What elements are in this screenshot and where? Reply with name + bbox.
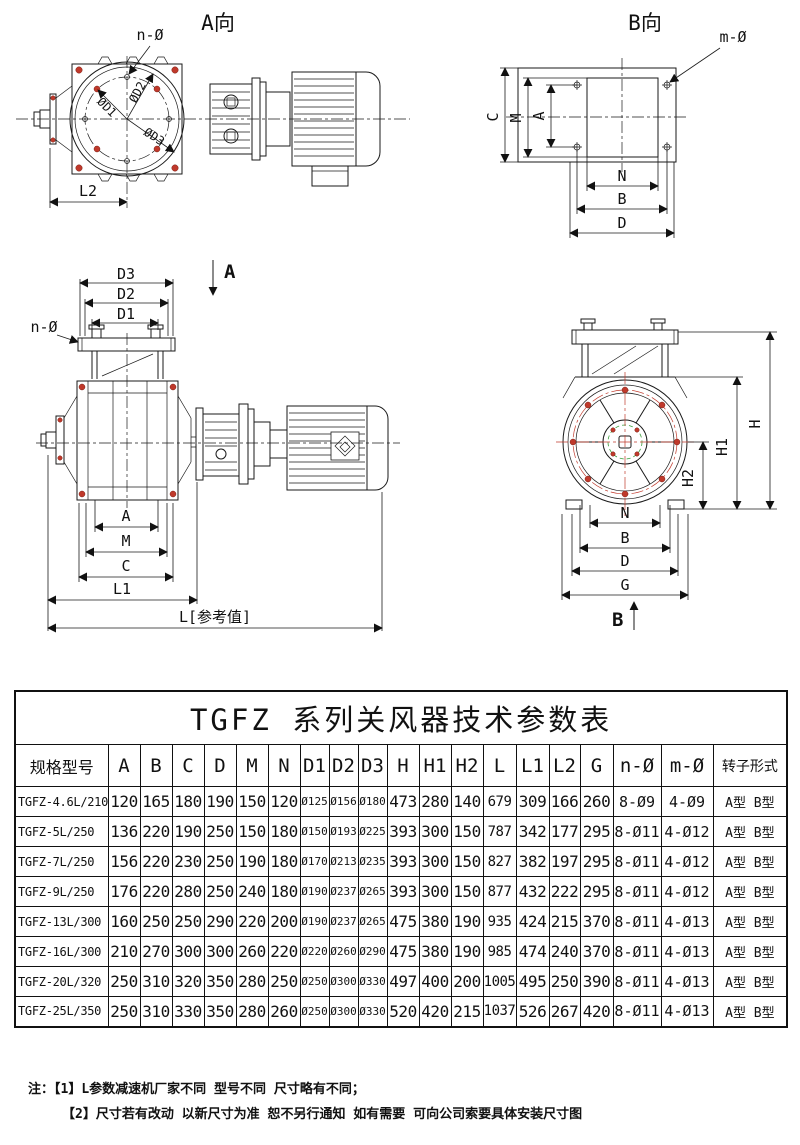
cell: A型 B型 (713, 967, 787, 997)
cell: 156 (108, 847, 140, 877)
cell: Ø213 (329, 847, 358, 877)
cell: 310 (140, 967, 172, 997)
end-section-b-marker: B (612, 609, 623, 631)
cell: 240 (236, 877, 268, 907)
cell: 150 (236, 787, 268, 817)
front-section-a-marker: A (224, 261, 236, 283)
front-l-ref-label: L[参考值] (179, 608, 251, 626)
note-line-2: 【2】尺寸若有改动 以新尺寸为准 恕不另行通知 如有需要 可向公司索要具体安装尺… (62, 1102, 582, 1127)
cell: 350 (204, 997, 236, 1027)
cell: 150 (236, 817, 268, 847)
cell: Ø330 (358, 997, 387, 1027)
column-header: H1 (419, 745, 451, 787)
end-b-label: B (620, 529, 629, 547)
cell: 495 (516, 967, 549, 997)
cell: 250 (172, 907, 204, 937)
cell: 380 (419, 937, 451, 967)
b-view-a-label: A (530, 111, 548, 120)
cell: 400 (419, 967, 451, 997)
table-row: TGFZ-13L/300160250250290220200Ø190Ø237Ø2… (15, 907, 787, 937)
cell: 140 (451, 787, 483, 817)
cell: 260 (580, 787, 613, 817)
a-view-d1-label: ØD1 (94, 95, 119, 120)
cell: 475 (387, 907, 419, 937)
cell: 180 (268, 877, 300, 907)
column-header: 规格型号 (15, 745, 108, 787)
notes-label: 注： (28, 1082, 54, 1097)
flange-opening (587, 78, 658, 157)
cell: 280 (172, 877, 204, 907)
column-header: 转子形式 (713, 745, 787, 787)
column-header: H2 (451, 745, 483, 787)
cell: TGFZ-20L/320 (15, 967, 108, 997)
front-d3-label: D3 (117, 265, 135, 283)
cell: 250 (204, 817, 236, 847)
cell: 220 (140, 847, 172, 877)
cell: 215 (451, 997, 483, 1027)
cell: 8-Ø9 (613, 787, 661, 817)
cell: 180 (172, 787, 204, 817)
cell: 8-Ø11 (613, 847, 661, 877)
cell: 180 (268, 817, 300, 847)
cell: 474 (516, 937, 549, 967)
table-row: TGFZ-25L/350250310330350280260Ø250Ø300Ø3… (15, 997, 787, 1027)
a-view-n-hole-label: n-Ø (136, 26, 163, 44)
cell: 309 (516, 787, 549, 817)
cell: 497 (387, 967, 419, 997)
cell: 150 (451, 877, 483, 907)
cell: 4-Ø13 (661, 967, 713, 997)
cell: Ø235 (358, 847, 387, 877)
cell: 136 (108, 817, 140, 847)
cell: TGFZ-5L/250 (15, 817, 108, 847)
view-end-drawing: H H1 H2 N B D G B (556, 319, 777, 631)
front-d1-label: D1 (117, 305, 135, 323)
b-view-c-label: C (484, 112, 502, 121)
view-front-drawing: A D3 D2 D1 n-Ø (30, 260, 400, 631)
cell: Ø260 (329, 937, 358, 967)
engineering-drawings: A向 ØD1 ØD2 ØD3 (0, 0, 800, 690)
cell: 985 (483, 937, 516, 967)
header-row: 规格型号ABCDMND1D2D3HH1H2LL1L2Gn-Øm-Ø转子形式 (15, 745, 787, 787)
cell: 432 (516, 877, 549, 907)
cell: TGFZ-7L/250 (15, 847, 108, 877)
cell: 300 (204, 937, 236, 967)
cell: 290 (204, 907, 236, 937)
cell: 420 (419, 997, 451, 1027)
cell: 270 (140, 937, 172, 967)
column-header: L (483, 745, 516, 787)
cell: 526 (516, 997, 549, 1027)
cell: 1037 (483, 997, 516, 1027)
cell: 150 (451, 817, 483, 847)
cell: 250 (268, 967, 300, 997)
column-header: D3 (358, 745, 387, 787)
cell: Ø170 (300, 847, 329, 877)
b-view-b-label: B (617, 190, 626, 208)
cell: 679 (483, 787, 516, 817)
cell: 295 (580, 817, 613, 847)
cell: 380 (419, 907, 451, 937)
column-header: N (268, 745, 300, 787)
cell: 475 (387, 937, 419, 967)
cell: 240 (549, 937, 580, 967)
cell: 300 (172, 937, 204, 967)
column-header: L2 (549, 745, 580, 787)
cell: Ø156 (329, 787, 358, 817)
cell: 120 (268, 787, 300, 817)
cell: 190 (236, 847, 268, 877)
cell: Ø150 (300, 817, 329, 847)
table-row: TGFZ-7L/250156220230250190180Ø170Ø213Ø23… (15, 847, 787, 877)
column-header: A (108, 745, 140, 787)
cell: 382 (516, 847, 549, 877)
cell: 424 (516, 907, 549, 937)
cell: 190 (451, 907, 483, 937)
notes: 注：【1】L参数减速机厂家不同 型号不同 尺寸略有不同； 【2】尺寸若有改动 以… (28, 1077, 582, 1127)
cell: 320 (172, 967, 204, 997)
cell: 350 (204, 967, 236, 997)
cell: A型 B型 (713, 817, 787, 847)
cell: Ø237 (329, 907, 358, 937)
column-header: m-Ø (661, 745, 713, 787)
cell: 250 (204, 877, 236, 907)
cell: 222 (549, 877, 580, 907)
cell: 8-Ø11 (613, 817, 661, 847)
cell: A型 B型 (713, 937, 787, 967)
cell: 877 (483, 877, 516, 907)
cell: 190 (172, 817, 204, 847)
cell: Ø250 (300, 967, 329, 997)
cell: 393 (387, 877, 419, 907)
cell: Ø250 (300, 997, 329, 1027)
cell: 393 (387, 847, 419, 877)
cell: 250 (549, 967, 580, 997)
cell: 260 (236, 937, 268, 967)
cell: 200 (268, 907, 300, 937)
cell: 4-Ø12 (661, 877, 713, 907)
inlet-flange (78, 338, 175, 351)
datasheet-page: A向 ØD1 ØD2 ØD3 (0, 0, 800, 1145)
cell: A型 B型 (713, 997, 787, 1027)
column-header: D1 (300, 745, 329, 787)
cell: 210 (108, 937, 140, 967)
end-n-label: N (620, 504, 629, 522)
column-header: G (580, 745, 613, 787)
cell: 390 (580, 967, 613, 997)
cell: 190 (451, 937, 483, 967)
cell: 200 (451, 967, 483, 997)
cell: Ø190 (300, 877, 329, 907)
front-m-label: M (121, 532, 130, 550)
cell: 4-Ø13 (661, 937, 713, 967)
cell: 197 (549, 847, 580, 877)
cell: 4-Ø13 (661, 907, 713, 937)
cell: Ø300 (329, 967, 358, 997)
cell: 190 (204, 787, 236, 817)
end-h1-label: H1 (713, 438, 731, 456)
cell: 215 (549, 907, 580, 937)
cell: 787 (483, 817, 516, 847)
column-header: M (236, 745, 268, 787)
cell: TGFZ-13L/300 (15, 907, 108, 937)
note-line-1: 注：【1】L参数减速机厂家不同 型号不同 尺寸略有不同； (28, 1077, 582, 1102)
cell: 8-Ø11 (613, 997, 661, 1027)
cell: 300 (419, 877, 451, 907)
cell: A型 B型 (713, 787, 787, 817)
cell: Ø125 (300, 787, 329, 817)
cell: 4-Ø12 (661, 817, 713, 847)
cell: TGFZ-25L/350 (15, 997, 108, 1027)
cell: 8-Ø11 (613, 967, 661, 997)
cell: Ø193 (329, 817, 358, 847)
cell: TGFZ-9L/250 (15, 877, 108, 907)
inlet-flange (572, 330, 678, 344)
cell: 310 (140, 997, 172, 1027)
cell: 473 (387, 787, 419, 817)
cell: 295 (580, 847, 613, 877)
end-h2-label: H2 (679, 469, 697, 487)
cell: 935 (483, 907, 516, 937)
cell: Ø265 (358, 907, 387, 937)
b-view-m-hole-label: m-Ø (719, 28, 746, 46)
cell: TGFZ-16L/300 (15, 937, 108, 967)
valve-body (77, 381, 178, 500)
cell: Ø330 (358, 967, 387, 997)
a-view-d2-label: ØD2 (126, 79, 149, 105)
cell: 8-Ø11 (613, 907, 661, 937)
note-item-1: 【1】L参数减速机厂家不同 型号不同 尺寸略有不同； (54, 1082, 365, 1097)
front-l1-label: L1 (113, 580, 131, 598)
gearbox (203, 414, 239, 476)
cell: 4-Ø9 (661, 787, 713, 817)
table-row: TGFZ-9L/250176220280250240180Ø190Ø237Ø26… (15, 877, 787, 907)
cell: 280 (236, 967, 268, 997)
column-header: D (204, 745, 236, 787)
cell: A型 B型 (713, 907, 787, 937)
a-view-title: A向 (201, 11, 235, 35)
b-view-n-label: N (617, 167, 626, 185)
table-title: TGFZ 系列关风器技术参数表 (15, 691, 787, 745)
cell: 520 (387, 997, 419, 1027)
front-n-hole-label: n-Ø (30, 318, 57, 336)
table-row: TGFZ-5L/250136220190250150180Ø150Ø193Ø22… (15, 817, 787, 847)
cell: 260 (268, 997, 300, 1027)
cell: 300 (419, 817, 451, 847)
front-d2-label: D2 (117, 285, 135, 303)
cell: 393 (387, 817, 419, 847)
cell: 8-Ø11 (613, 877, 661, 907)
cell: 177 (549, 817, 580, 847)
cell: 280 (236, 997, 268, 1027)
cell: 250 (204, 847, 236, 877)
column-header: L1 (516, 745, 549, 787)
cell: 220 (236, 907, 268, 937)
cell: 1005 (483, 967, 516, 997)
cell: 220 (140, 877, 172, 907)
table-row: TGFZ-20L/320250310320350280250Ø250Ø300Ø3… (15, 967, 787, 997)
cell: 342 (516, 817, 549, 847)
cell: 4-Ø12 (661, 847, 713, 877)
cell: 280 (419, 787, 451, 817)
end-d-label: D (620, 552, 629, 570)
cell: 250 (140, 907, 172, 937)
cell: Ø190 (300, 907, 329, 937)
cell: 4-Ø13 (661, 997, 713, 1027)
cell: A型 B型 (713, 877, 787, 907)
cell: 230 (172, 847, 204, 877)
cell: Ø237 (329, 877, 358, 907)
column-header: B (140, 745, 172, 787)
cell: 160 (108, 907, 140, 937)
column-header: H (387, 745, 419, 787)
cell: 220 (268, 937, 300, 967)
cell: 250 (108, 997, 140, 1027)
parameter-table: TGFZ 系列关风器技术参数表规格型号ABCDMND1D2D3HH1H2LL1L… (14, 690, 788, 1028)
cell: 267 (549, 997, 580, 1027)
cell: Ø225 (358, 817, 387, 847)
cell: A型 B型 (713, 847, 787, 877)
cell: 420 (580, 997, 613, 1027)
cell: 150 (451, 847, 483, 877)
cell: Ø220 (300, 937, 329, 967)
front-c-label: C (121, 557, 130, 575)
table-row: TGFZ-16L/300210270300300260220Ø220Ø260Ø2… (15, 937, 787, 967)
cell: 370 (580, 907, 613, 937)
cell: 330 (172, 997, 204, 1027)
cell: 120 (108, 787, 140, 817)
cell: Ø290 (358, 937, 387, 967)
front-a-label: A (121, 507, 130, 525)
end-g-label: G (620, 576, 629, 594)
cell: 166 (549, 787, 580, 817)
cell: 370 (580, 937, 613, 967)
cell: 220 (140, 817, 172, 847)
cell: Ø300 (329, 997, 358, 1027)
b-view-m-label: M (507, 113, 525, 122)
cell: 300 (419, 847, 451, 877)
b-view-d-label: D (617, 214, 626, 232)
table-row: TGFZ-4.6L/210120165180190150120Ø125Ø156Ø… (15, 787, 787, 817)
cell: 176 (108, 877, 140, 907)
motor-terminal-box (312, 166, 348, 186)
cell: 180 (268, 847, 300, 877)
cell: 827 (483, 847, 516, 877)
cell: 250 (108, 967, 140, 997)
cell: 295 (580, 877, 613, 907)
view-a-drawing: A向 ØD1 ØD2 ØD3 (16, 11, 410, 208)
column-header: C (172, 745, 204, 787)
cell: Ø265 (358, 877, 387, 907)
cell: TGFZ-4.6L/210 (15, 787, 108, 817)
view-b-drawing: B向 C M A (484, 11, 747, 238)
end-h-label: H (746, 419, 764, 428)
cell: Ø180 (358, 787, 387, 817)
cell: 165 (140, 787, 172, 817)
column-header: n-Ø (613, 745, 661, 787)
cell: 8-Ø11 (613, 937, 661, 967)
a-view-l2-label: L2 (79, 182, 97, 200)
note-item-2: 【2】尺寸若有改动 以新尺寸为准 恕不另行通知 如有需要 可向公司索要具体安装尺… (62, 1107, 582, 1122)
b-view-title: B向 (628, 11, 662, 35)
column-header: D2 (329, 745, 358, 787)
